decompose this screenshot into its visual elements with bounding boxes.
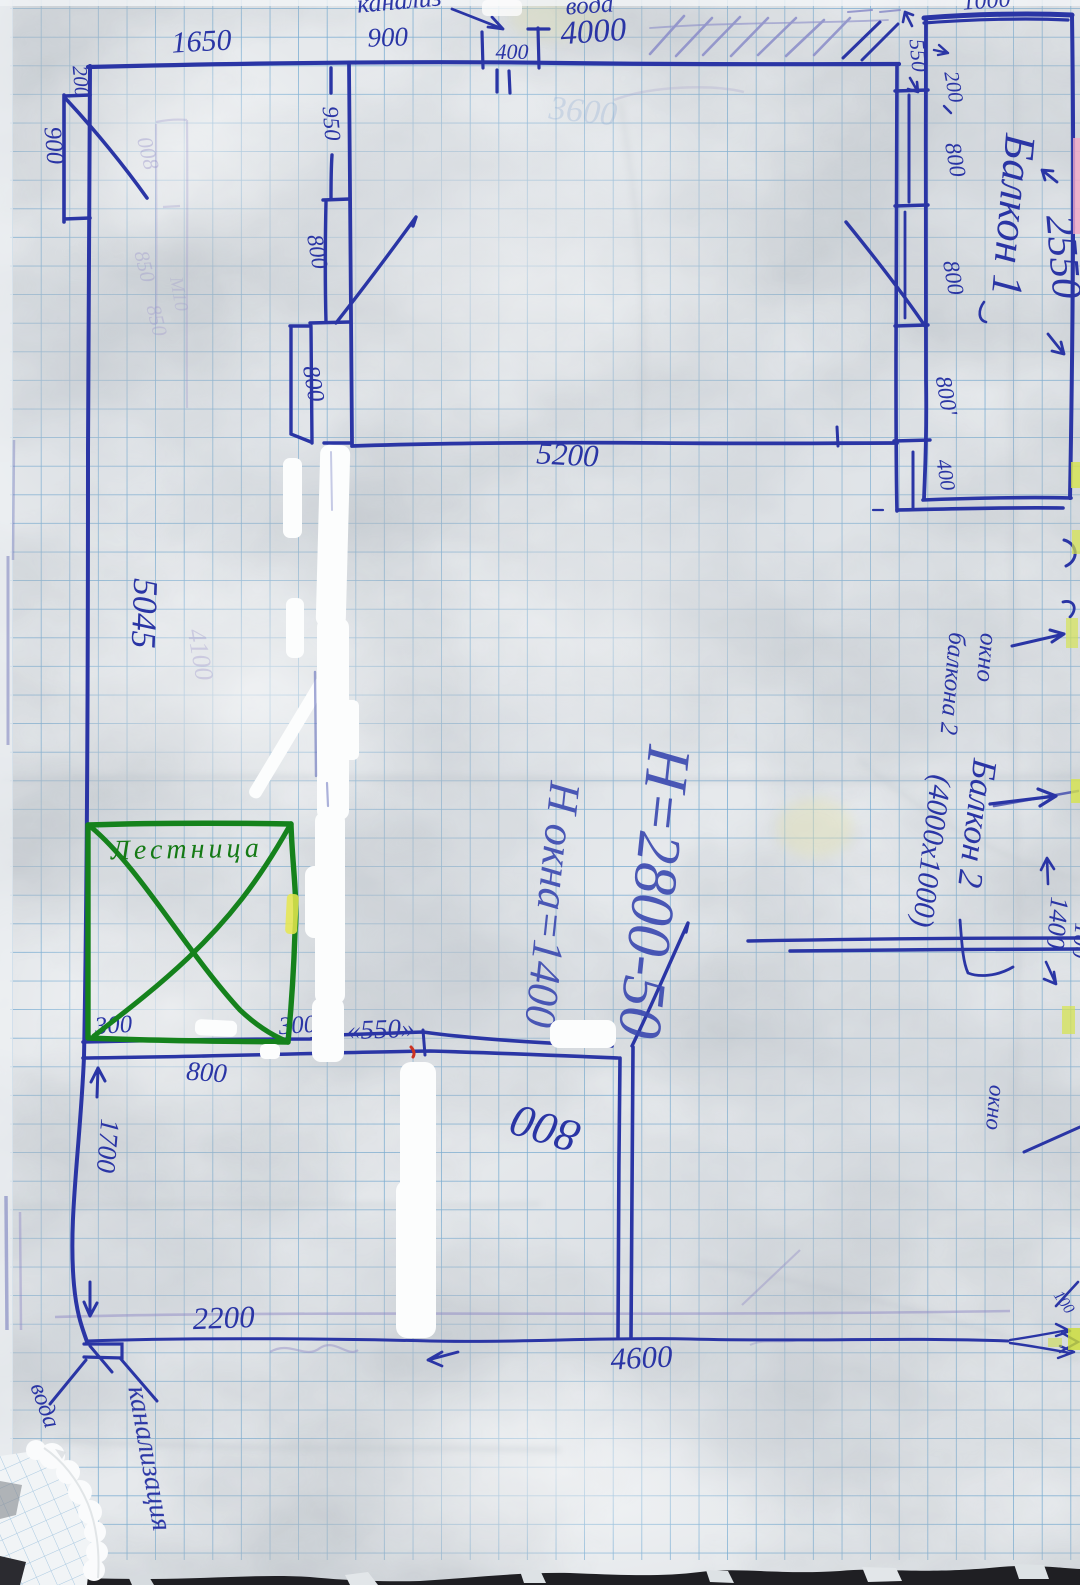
svg-text:5200: 5200 [536,435,600,473]
svg-text:900: 900 [38,125,68,165]
svg-text:800: 800 [185,1056,228,1089]
svg-text:5045: 5045 [124,578,165,649]
svg-text:3600: 3600 [546,90,618,134]
svg-text:2200: 2200 [192,1299,256,1336]
svg-text:окно: окно [971,632,1002,683]
svg-text:окно: окно [981,1084,1010,1131]
svg-text:1650: 1650 [171,23,233,59]
svg-text:900: 900 [367,21,409,52]
svg-text:950: 950 [318,105,346,142]
svg-text:400: 400 [496,39,529,64]
svg-text:200: 200 [68,65,95,99]
svg-text:Лестница: Лестница [110,833,263,867]
svg-text:1700: 1700 [91,1118,126,1175]
svg-text:550: 550 [905,38,933,73]
svg-text:«550»: «550» [346,1013,415,1045]
svg-text:4600: 4600 [610,1338,674,1376]
svg-text:300: 300 [277,1011,318,1041]
svg-text:вода: вода [565,0,615,21]
